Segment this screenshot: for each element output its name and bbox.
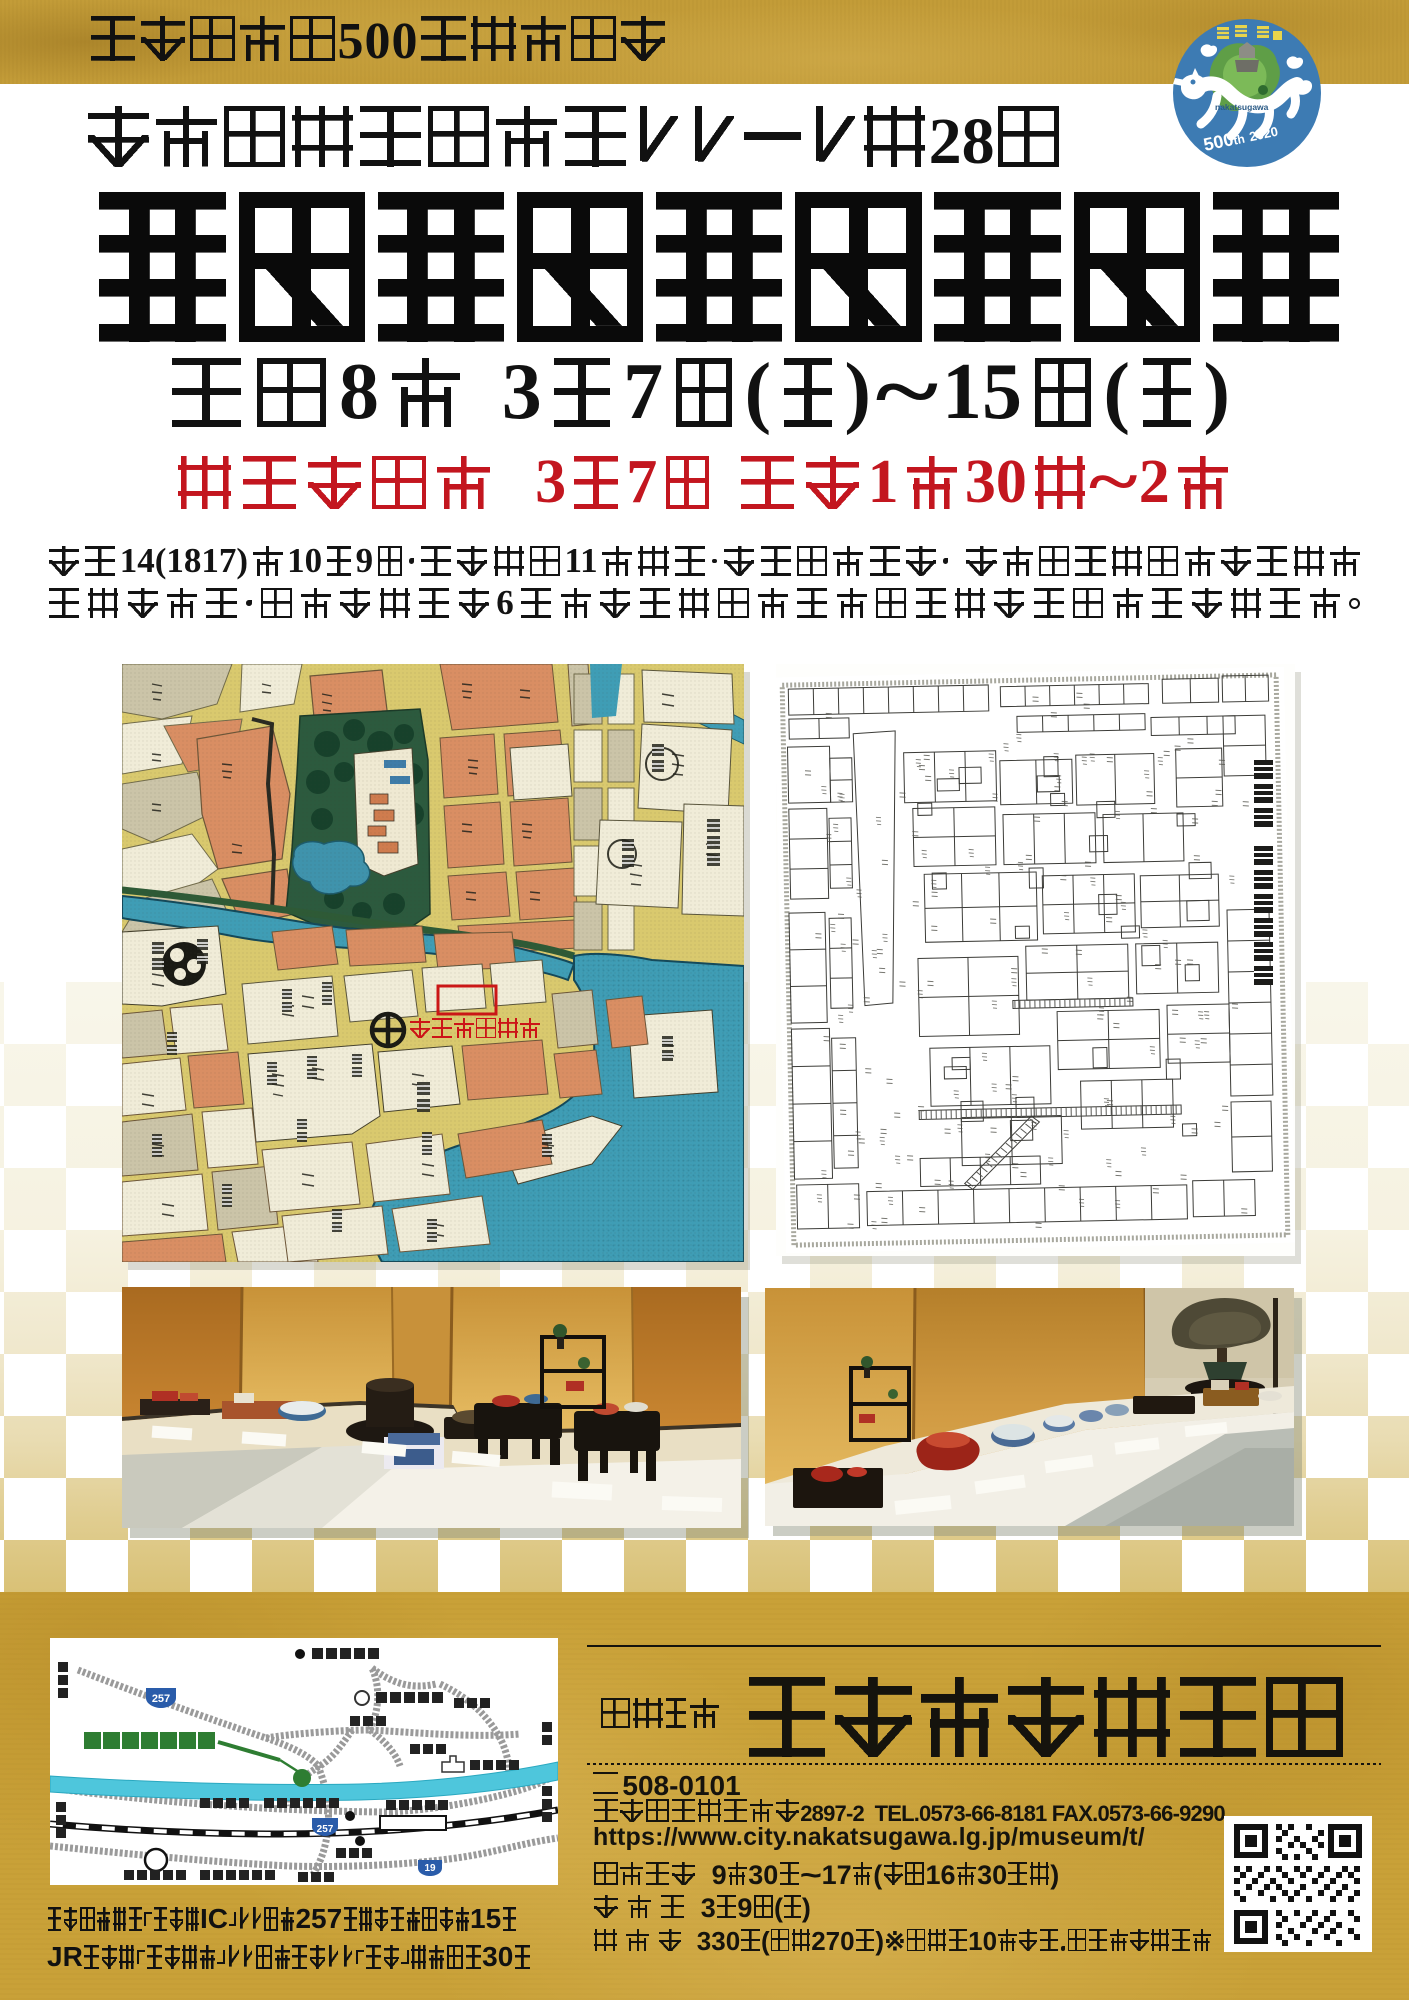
svg-text:nakatsugawa: nakatsugawa [1215, 102, 1269, 112]
svg-text:257: 257 [152, 1693, 170, 1705]
svg-text:19: 19 [424, 1863, 436, 1874]
svg-text:257: 257 [317, 1824, 334, 1835]
